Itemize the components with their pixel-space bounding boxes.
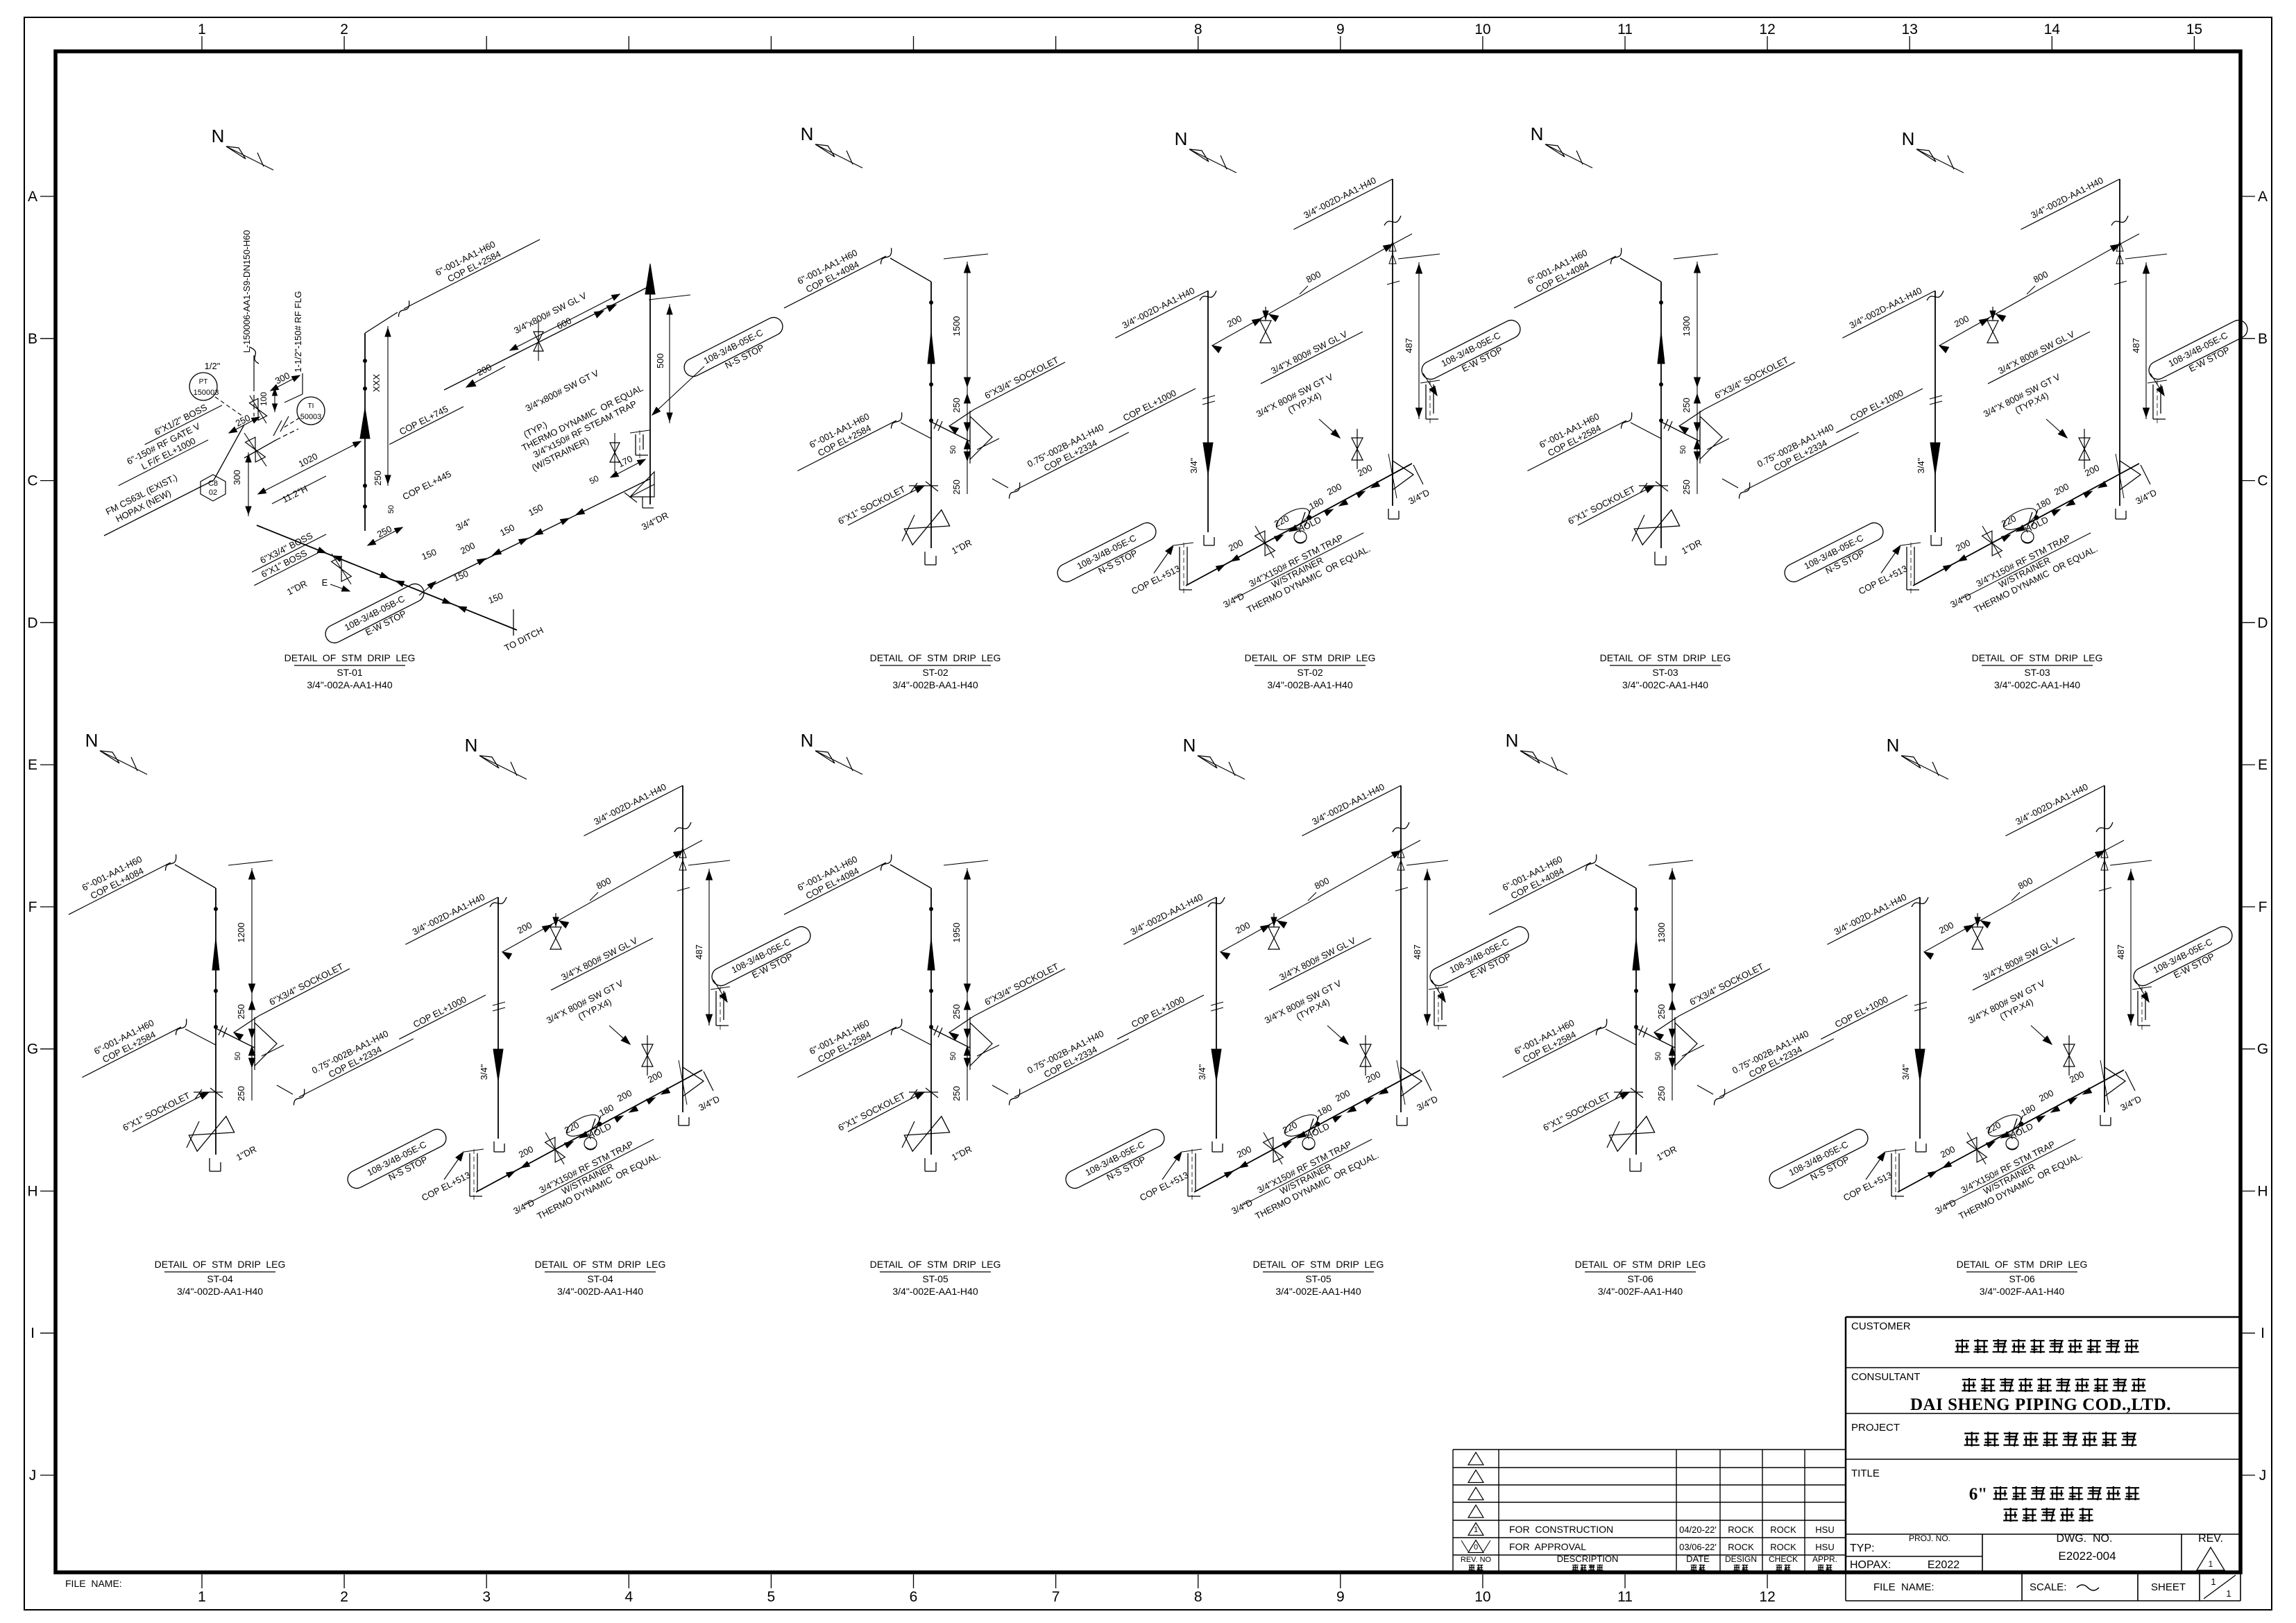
svg-text:15: 15	[2186, 22, 2202, 37]
svg-text:ST-06: ST-06	[2009, 1273, 2035, 1284]
svg-text:2: 2	[340, 22, 348, 37]
svg-text:I: I	[31, 1325, 35, 1341]
svg-text:50: 50	[1679, 445, 1687, 454]
svg-text:CONSULTANT: CONSULTANT	[1851, 1371, 1920, 1383]
svg-text:DETAIL OF STM DRIP LEG: DETAIL OF STM DRIP LEG	[1600, 652, 1731, 663]
svg-text:8: 8	[1194, 1589, 1202, 1605]
svg-text:ROCK: ROCK	[1728, 1524, 1754, 1535]
svg-text:5: 5	[767, 1589, 776, 1605]
svg-text:D: D	[2257, 615, 2268, 631]
svg-text:3/4"-002C-AA1-H40: 3/4"-002C-AA1-H40	[1994, 679, 2080, 690]
svg-text:2: 2	[340, 1589, 348, 1605]
svg-text:DETAIL OF STM DRIP LEG: DETAIL OF STM DRIP LEG	[1957, 1259, 2088, 1270]
svg-text:50: 50	[234, 1052, 242, 1060]
svg-text:CUSTOMER: CUSTOMER	[1851, 1320, 1911, 1332]
svg-text:C: C	[27, 473, 37, 489]
svg-text:1: 1	[198, 22, 206, 37]
svg-text:DETAIL OF STM DRIP LEG: DETAIL OF STM DRIP LEG	[535, 1259, 666, 1270]
svg-text:E2022-004: E2022-004	[2058, 1549, 2116, 1563]
svg-text:50: 50	[387, 505, 396, 513]
svg-text:D: D	[27, 615, 37, 631]
svg-text:E: E	[322, 577, 328, 588]
svg-text:I: I	[2261, 1325, 2265, 1341]
svg-text:N: N	[212, 126, 225, 146]
svg-text:SCALE:: SCALE:	[2030, 1581, 2066, 1593]
svg-text:ROCK: ROCK	[1770, 1542, 1796, 1552]
svg-text:03/06-22': 03/06-22'	[1679, 1542, 1717, 1552]
svg-text:DETAIL OF STM DRIP LEG: DETAIL OF STM DRIP LEG	[1575, 1259, 1706, 1270]
svg-text:9: 9	[1336, 22, 1345, 37]
svg-text:487: 487	[2131, 338, 2141, 353]
svg-text:N: N	[1531, 124, 1544, 144]
svg-text:10: 10	[1474, 22, 1490, 37]
svg-text:4: 4	[624, 1589, 633, 1605]
svg-text:11: 11	[1617, 1589, 1633, 1605]
svg-text:3/4": 3/4"	[1916, 457, 1926, 473]
svg-text:ROCK: ROCK	[1728, 1542, 1754, 1552]
svg-text:487: 487	[1412, 944, 1422, 960]
svg-text:CHECK: CHECK	[1769, 1554, 1798, 1564]
svg-text:DETAIL OF STM DRIP LEG: DETAIL OF STM DRIP LEG	[870, 1259, 1001, 1270]
svg-text:FILE NAME:: FILE NAME:	[65, 1578, 122, 1589]
svg-text:E: E	[28, 757, 37, 773]
svg-text:487: 487	[694, 944, 704, 960]
svg-text:N: N	[1887, 735, 1900, 756]
svg-text:N: N	[1506, 730, 1519, 751]
svg-text:DETAIL OF STM DRIP LEG: DETAIL OF STM DRIP LEG	[1253, 1259, 1384, 1270]
svg-text:F: F	[28, 899, 37, 915]
svg-text:N: N	[1183, 735, 1196, 756]
svg-text:HSU: HSU	[1815, 1542, 1834, 1552]
svg-text:6: 6	[910, 1589, 918, 1605]
svg-text:PROJECT: PROJECT	[1851, 1422, 1900, 1434]
svg-text:APPR.: APPR.	[1812, 1554, 1837, 1564]
svg-text:1500: 1500	[951, 316, 962, 337]
svg-text:TYP:: TYP:	[1850, 1543, 1875, 1554]
svg-text:3/4": 3/4"	[479, 1064, 489, 1080]
svg-text:ST-02: ST-02	[922, 667, 949, 678]
svg-text:N: N	[801, 730, 814, 751]
svg-text:487: 487	[2116, 944, 2126, 960]
svg-text:1300: 1300	[1656, 923, 1667, 943]
svg-text:11: 11	[1617, 22, 1633, 37]
svg-text:G: G	[27, 1042, 38, 1057]
svg-text:3/4"-002A-AA1-H40: 3/4"-002A-AA1-H40	[307, 679, 392, 690]
svg-text:N: N	[85, 730, 99, 751]
svg-text:ROCK: ROCK	[1770, 1524, 1796, 1535]
svg-text:3/4"-002E-AA1-H40: 3/4"-002E-AA1-H40	[892, 1286, 978, 1297]
svg-text:DETAIL OF STM DRIP LEG: DETAIL OF STM DRIP LEG	[1972, 652, 2103, 663]
svg-text:DAI SHENG PIPING COD.,LTD.: DAI SHENG PIPING COD.,LTD.	[1910, 1395, 2171, 1414]
svg-text:250: 250	[1681, 398, 1692, 413]
svg-text:N: N	[1175, 128, 1188, 149]
svg-text:DATE: DATE	[1686, 1554, 1710, 1564]
svg-text:12: 12	[1759, 1589, 1775, 1605]
svg-text:3/4"-002F-AA1-H40: 3/4"-002F-AA1-H40	[1980, 1286, 2065, 1297]
svg-text:DETAIL OF STM DRIP LEG: DETAIL OF STM DRIP LEG	[1245, 652, 1376, 663]
svg-text:N: N	[1902, 128, 1915, 149]
svg-text:3/4"-002B-AA1-H40: 3/4"-002B-AA1-H40	[892, 679, 978, 690]
svg-text:B: B	[2258, 331, 2268, 347]
svg-text:N: N	[801, 124, 814, 144]
svg-text:3/4"-002D-AA1-H40: 3/4"-002D-AA1-H40	[557, 1286, 643, 1297]
svg-text:250: 250	[1681, 479, 1692, 495]
svg-text:50: 50	[1654, 1052, 1663, 1060]
svg-text:3/4"-002D-AA1-H40: 3/4"-002D-AA1-H40	[177, 1286, 263, 1297]
svg-text:487: 487	[1404, 338, 1414, 353]
svg-text:300: 300	[232, 470, 242, 485]
svg-text:A: A	[2258, 189, 2268, 205]
svg-text:3/4": 3/4"	[1900, 1064, 1911, 1080]
svg-text:FOR APPROVAL: FOR APPROVAL	[1509, 1541, 1586, 1552]
svg-text:ST-01: ST-01	[337, 667, 363, 678]
svg-text:1/2": 1/2"	[205, 361, 221, 371]
svg-text:3/4"-002C-AA1-H40: 3/4"-002C-AA1-H40	[1622, 679, 1708, 690]
svg-text:TI: TI	[308, 402, 314, 410]
svg-text:1-1/2"-150# RF FLG: 1-1/2"-150# RF FLG	[293, 291, 303, 372]
svg-text:N: N	[465, 735, 478, 756]
svg-text:L-150006-AA1-S9-DN150-H60: L-150006-AA1-S9-DN150-H60	[241, 230, 252, 352]
svg-text:HOPAX:: HOPAX:	[1850, 1559, 1891, 1571]
svg-text:1: 1	[1474, 1526, 1478, 1534]
svg-text:3/4"-002F-AA1-H40: 3/4"-002F-AA1-H40	[1598, 1286, 1683, 1297]
svg-text:250: 250	[951, 479, 962, 495]
svg-text:DWG. NO.: DWG. NO.	[2057, 1533, 2113, 1545]
svg-text:250: 250	[951, 398, 962, 413]
svg-text:DESIGN: DESIGN	[1725, 1554, 1757, 1564]
svg-text:1300: 1300	[1681, 316, 1692, 337]
svg-text:1950: 1950	[951, 923, 962, 943]
svg-text:ST-03: ST-03	[1652, 667, 1678, 678]
svg-text:A: A	[28, 189, 37, 205]
svg-text:6": 6"	[1969, 1485, 1987, 1504]
svg-text:250: 250	[1656, 1086, 1667, 1101]
svg-text:0: 0	[1474, 1543, 1478, 1552]
svg-text:50003: 50003	[300, 413, 322, 421]
svg-text:E2022: E2022	[1928, 1559, 1959, 1571]
svg-text:C8: C8	[208, 479, 218, 488]
svg-text:F: F	[2259, 899, 2268, 915]
svg-text:REV. NO: REV. NO	[1461, 1556, 1492, 1564]
svg-text:02: 02	[209, 488, 217, 497]
svg-text:ST-04: ST-04	[587, 1273, 613, 1284]
svg-text:XXX: XXX	[371, 374, 382, 392]
svg-text:1: 1	[2211, 1577, 2216, 1587]
svg-text:250: 250	[951, 1004, 962, 1019]
svg-text:50: 50	[949, 445, 958, 454]
svg-text:150003: 150003	[194, 389, 219, 397]
svg-text:3: 3	[482, 1589, 491, 1605]
svg-text:PROJ. NO.: PROJ. NO.	[1909, 1533, 1950, 1543]
svg-text:DETAIL OF STM DRIP LEG: DETAIL OF STM DRIP LEG	[870, 652, 1001, 663]
svg-text:13: 13	[1902, 22, 1918, 37]
svg-text:DESCRIPTION: DESCRIPTION	[1557, 1554, 1619, 1564]
svg-text:FOR CONSTRUCTION: FOR CONSTRUCTION	[1509, 1524, 1613, 1535]
svg-text:ST-06: ST-06	[1627, 1273, 1653, 1284]
svg-text:H: H	[27, 1184, 37, 1200]
svg-text:3/4"-002E-AA1-H40: 3/4"-002E-AA1-H40	[1275, 1286, 1361, 1297]
svg-text:G: G	[2257, 1042, 2268, 1057]
svg-text:3/4"-002B-AA1-H40: 3/4"-002B-AA1-H40	[1267, 679, 1352, 690]
svg-text:H: H	[2257, 1184, 2268, 1200]
svg-text:14: 14	[2044, 22, 2061, 37]
svg-text:HSU: HSU	[1815, 1524, 1834, 1535]
svg-text:50: 50	[949, 1052, 958, 1060]
svg-text:J: J	[2259, 1468, 2267, 1484]
svg-text:10: 10	[1474, 1589, 1490, 1605]
svg-text:250: 250	[373, 470, 383, 486]
svg-text:04/20-22': 04/20-22'	[1679, 1524, 1717, 1535]
svg-text:ST-03: ST-03	[2024, 667, 2050, 678]
svg-text:12: 12	[1759, 22, 1775, 37]
svg-text:250: 250	[236, 1004, 246, 1019]
svg-text:C: C	[2257, 473, 2268, 489]
svg-text:1200: 1200	[236, 923, 246, 943]
svg-text:250: 250	[1656, 1004, 1667, 1019]
svg-text:TITLE: TITLE	[1851, 1468, 1880, 1479]
svg-text:ST-02: ST-02	[1297, 667, 1323, 678]
svg-text:ST-05: ST-05	[1305, 1273, 1332, 1284]
svg-text:1: 1	[2226, 1588, 2231, 1599]
svg-text:J: J	[29, 1468, 37, 1484]
svg-text:500: 500	[655, 353, 665, 368]
svg-text:3/4": 3/4"	[1189, 457, 1199, 473]
svg-text:ST-04: ST-04	[207, 1273, 233, 1284]
svg-text:250: 250	[236, 1086, 246, 1101]
svg-text:B: B	[28, 331, 37, 347]
svg-text:3/4": 3/4"	[1197, 1064, 1207, 1080]
svg-text:7: 7	[1052, 1589, 1060, 1605]
svg-text:SHEET: SHEET	[2151, 1581, 2186, 1593]
svg-text:DETAIL OF STM DRIP LEG: DETAIL OF STM DRIP LEG	[155, 1259, 286, 1270]
svg-text:1: 1	[198, 1589, 206, 1605]
svg-text:100: 100	[259, 392, 269, 406]
svg-text:9: 9	[1336, 1589, 1345, 1605]
svg-text:DETAIL OF STM DRIP LEG: DETAIL OF STM DRIP LEG	[284, 652, 416, 663]
svg-text:8: 8	[1194, 22, 1202, 37]
svg-text:E: E	[2258, 757, 2268, 773]
svg-text:1: 1	[2209, 1559, 2213, 1569]
svg-text:250: 250	[951, 1086, 962, 1101]
svg-text:PT: PT	[199, 378, 208, 386]
svg-text:REV.: REV.	[2198, 1533, 2223, 1545]
svg-text:ST-05: ST-05	[922, 1273, 949, 1284]
svg-text:FILE NAME:: FILE NAME:	[1873, 1581, 1934, 1593]
